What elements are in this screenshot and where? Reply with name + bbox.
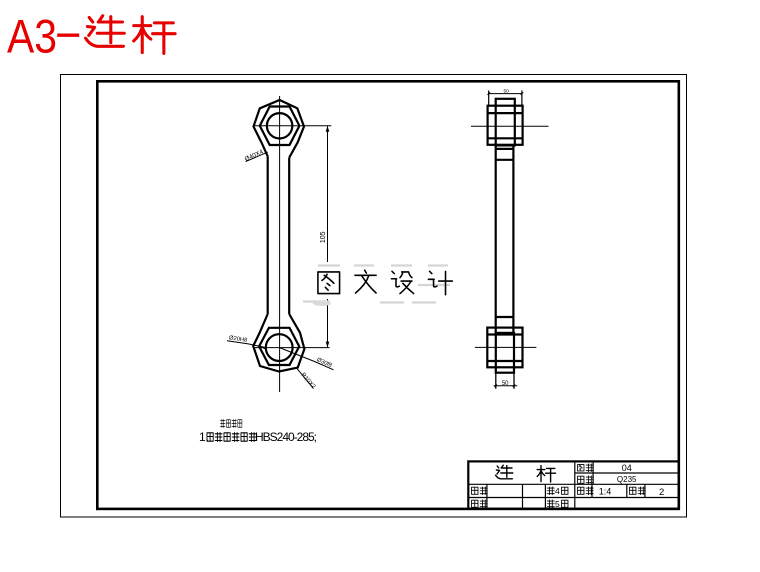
svg-text:Ø40X4: Ø40X4 <box>244 148 265 163</box>
svg-text:50: 50 <box>502 381 509 387</box>
svg-text:Ø20H8: Ø20H8 <box>229 335 248 343</box>
svg-text:A3: A3 <box>7 10 57 63</box>
svg-text:2: 2 <box>659 487 664 498</box>
svg-text:50: 50 <box>504 89 510 95</box>
svg-text:Ø30f8: Ø30f8 <box>316 357 333 369</box>
svg-text:04: 04 <box>622 463 632 473</box>
svg-text:R10X2: R10X2 <box>299 372 316 390</box>
svg-text:1:4: 1:4 <box>599 487 612 497</box>
svg-text:105: 105 <box>320 231 327 243</box>
svg-text:HBS240-285;: HBS240-285; <box>255 430 317 444</box>
svg-text:5: 5 <box>555 499 560 509</box>
svg-text:4: 4 <box>555 486 560 496</box>
svg-text:Q235: Q235 <box>617 475 637 484</box>
